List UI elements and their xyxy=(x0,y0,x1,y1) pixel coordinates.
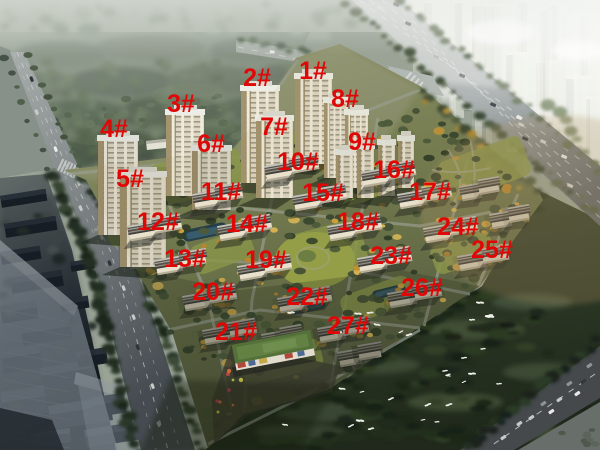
svg-text:15#: 15# xyxy=(302,179,344,207)
svg-text:8#: 8# xyxy=(331,85,359,113)
svg-text:17#: 17# xyxy=(409,178,451,206)
svg-text:26#: 26# xyxy=(401,274,443,302)
svg-text:10#: 10# xyxy=(277,148,319,176)
svg-text:13#: 13# xyxy=(164,245,206,273)
svg-text:9#: 9# xyxy=(348,128,376,156)
svg-text:7#: 7# xyxy=(260,113,288,141)
svg-text:20#: 20# xyxy=(192,278,234,306)
svg-text:23#: 23# xyxy=(370,242,412,270)
svg-text:27#: 27# xyxy=(327,312,369,340)
svg-text:3#: 3# xyxy=(167,90,195,118)
svg-text:2#: 2# xyxy=(243,64,271,92)
svg-text:1#: 1# xyxy=(299,57,327,85)
svg-text:11#: 11# xyxy=(201,178,241,206)
svg-text:22#: 22# xyxy=(286,283,328,311)
svg-text:6#: 6# xyxy=(197,130,225,158)
svg-text:12#: 12# xyxy=(137,208,179,236)
svg-text:14#: 14# xyxy=(226,210,268,238)
svg-text:19#: 19# xyxy=(245,246,287,274)
svg-text:5#: 5# xyxy=(116,165,144,193)
svg-text:4#: 4# xyxy=(100,115,128,143)
svg-text:18#: 18# xyxy=(337,208,379,236)
svg-text:25#: 25# xyxy=(471,236,513,264)
svg-text:21#: 21# xyxy=(215,318,257,346)
